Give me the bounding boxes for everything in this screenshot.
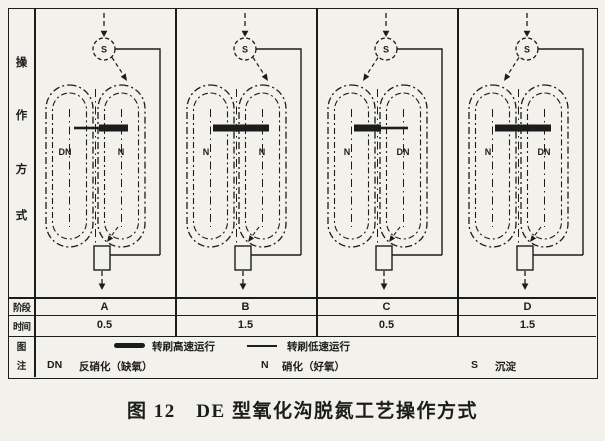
s-label: 沉淀 (495, 359, 516, 374)
brush-bar-left (213, 125, 240, 132)
clarifier-label: S (101, 45, 107, 55)
figure-caption: 图 12 DE 型氧化沟脱氮工艺操作方式 (0, 396, 605, 423)
stage-cell-b: B (175, 299, 316, 315)
high-speed-bar-icon (114, 343, 145, 348)
s-symbol: S (471, 359, 478, 371)
oxidation-ditch-diagram: S N N (175, 9, 316, 297)
legend-row-header-char: 图 (9, 339, 34, 353)
influent-arrow-icon (101, 31, 108, 37)
brush-bar-left (74, 127, 99, 130)
time-cell-c: 0.5 (316, 316, 457, 334)
phase-panel-b: S N N (175, 9, 316, 297)
phase-panel-a: S DN N (34, 9, 175, 297)
outlet-box (517, 246, 533, 270)
clarifier-label: S (242, 45, 248, 55)
time-cell-d: 1.5 (457, 316, 598, 334)
box-inlet-arrow-icon (107, 235, 113, 242)
box-inlet-arrow-icon (389, 235, 395, 242)
left-zone-label: N (203, 147, 210, 157)
mode-header-char: 操 (9, 54, 34, 70)
high-speed-label: 转刷高速运行 (152, 339, 215, 354)
legend-row-divider (9, 336, 596, 338)
effluent-arrow-icon (99, 284, 106, 291)
clarifier-label: S (524, 45, 530, 55)
low-speed-label: 转刷低速运行 (287, 339, 350, 354)
effluent-arrow-icon (240, 284, 247, 291)
oxidation-ditch-diagram: S DN N (34, 9, 175, 297)
outlet-box (376, 246, 392, 270)
influent-arrow-icon (242, 31, 249, 37)
mode-header-char: 式 (9, 207, 34, 223)
influent-arrow-icon (383, 31, 390, 37)
time-cell-a: 0.5 (34, 316, 175, 334)
panel-divider (457, 9, 459, 336)
box-inlet-arrow-icon (530, 235, 536, 242)
n-label: 硝化（好氧） (282, 359, 345, 374)
outlet-box (94, 246, 110, 270)
operation-mode-table: 操 作 方 式 S DN N (8, 8, 598, 379)
brush-bar-left (495, 125, 522, 132)
outlet-box (235, 246, 251, 270)
stage-row-header: 阶段 (9, 300, 34, 314)
right-zone-label: N (259, 147, 266, 157)
mode-header-char: 方 (9, 161, 34, 177)
box-inlet-arrow-icon (248, 235, 254, 242)
legend-row-header-char: 注 (9, 358, 34, 372)
clarifier-label: S (383, 45, 389, 55)
brush-bar-right (381, 127, 408, 130)
n-symbol: N (261, 359, 269, 371)
feed-arrow-icon (363, 73, 369, 81)
low-speed-bar-icon (247, 345, 277, 347)
feed-arrow-icon (504, 73, 510, 81)
dn-label: 反硝化（缺氧） (79, 359, 153, 374)
phase-panel-d: S N DN (457, 9, 598, 297)
left-zone-label: N (485, 147, 492, 157)
oxidation-ditch-diagram: S N DN (457, 9, 598, 297)
left-zone-label: N (344, 147, 351, 157)
time-cell-b: 1.5 (175, 316, 316, 334)
stage-cell-a: A (34, 299, 175, 315)
phase-panel-c: S N DN (316, 9, 457, 297)
feed-arrow-icon (262, 73, 268, 81)
panel-divider (316, 9, 318, 336)
right-zone-label: N (118, 147, 125, 157)
dn-symbol: DN (47, 359, 62, 371)
right-zone-label: DN (538, 147, 551, 157)
brush-bar-left (354, 125, 381, 132)
effluent-arrow-icon (522, 284, 529, 291)
time-row-header: 时间 (9, 319, 34, 333)
brush-bar-right (522, 125, 551, 132)
right-zone-label: DN (397, 147, 410, 157)
panel-divider (175, 9, 177, 336)
influent-arrow-icon (524, 31, 531, 37)
left-zone-label: DN (59, 147, 72, 157)
brush-bar-right (240, 125, 269, 132)
mode-header-char: 作 (9, 107, 34, 123)
oxidation-ditch-diagram: S N DN (316, 9, 457, 297)
feed-arrow-icon (121, 73, 127, 81)
stage-cell-d: D (457, 299, 598, 315)
stage-cell-c: C (316, 299, 457, 315)
brush-bar-right (99, 125, 128, 132)
effluent-arrow-icon (381, 284, 388, 291)
